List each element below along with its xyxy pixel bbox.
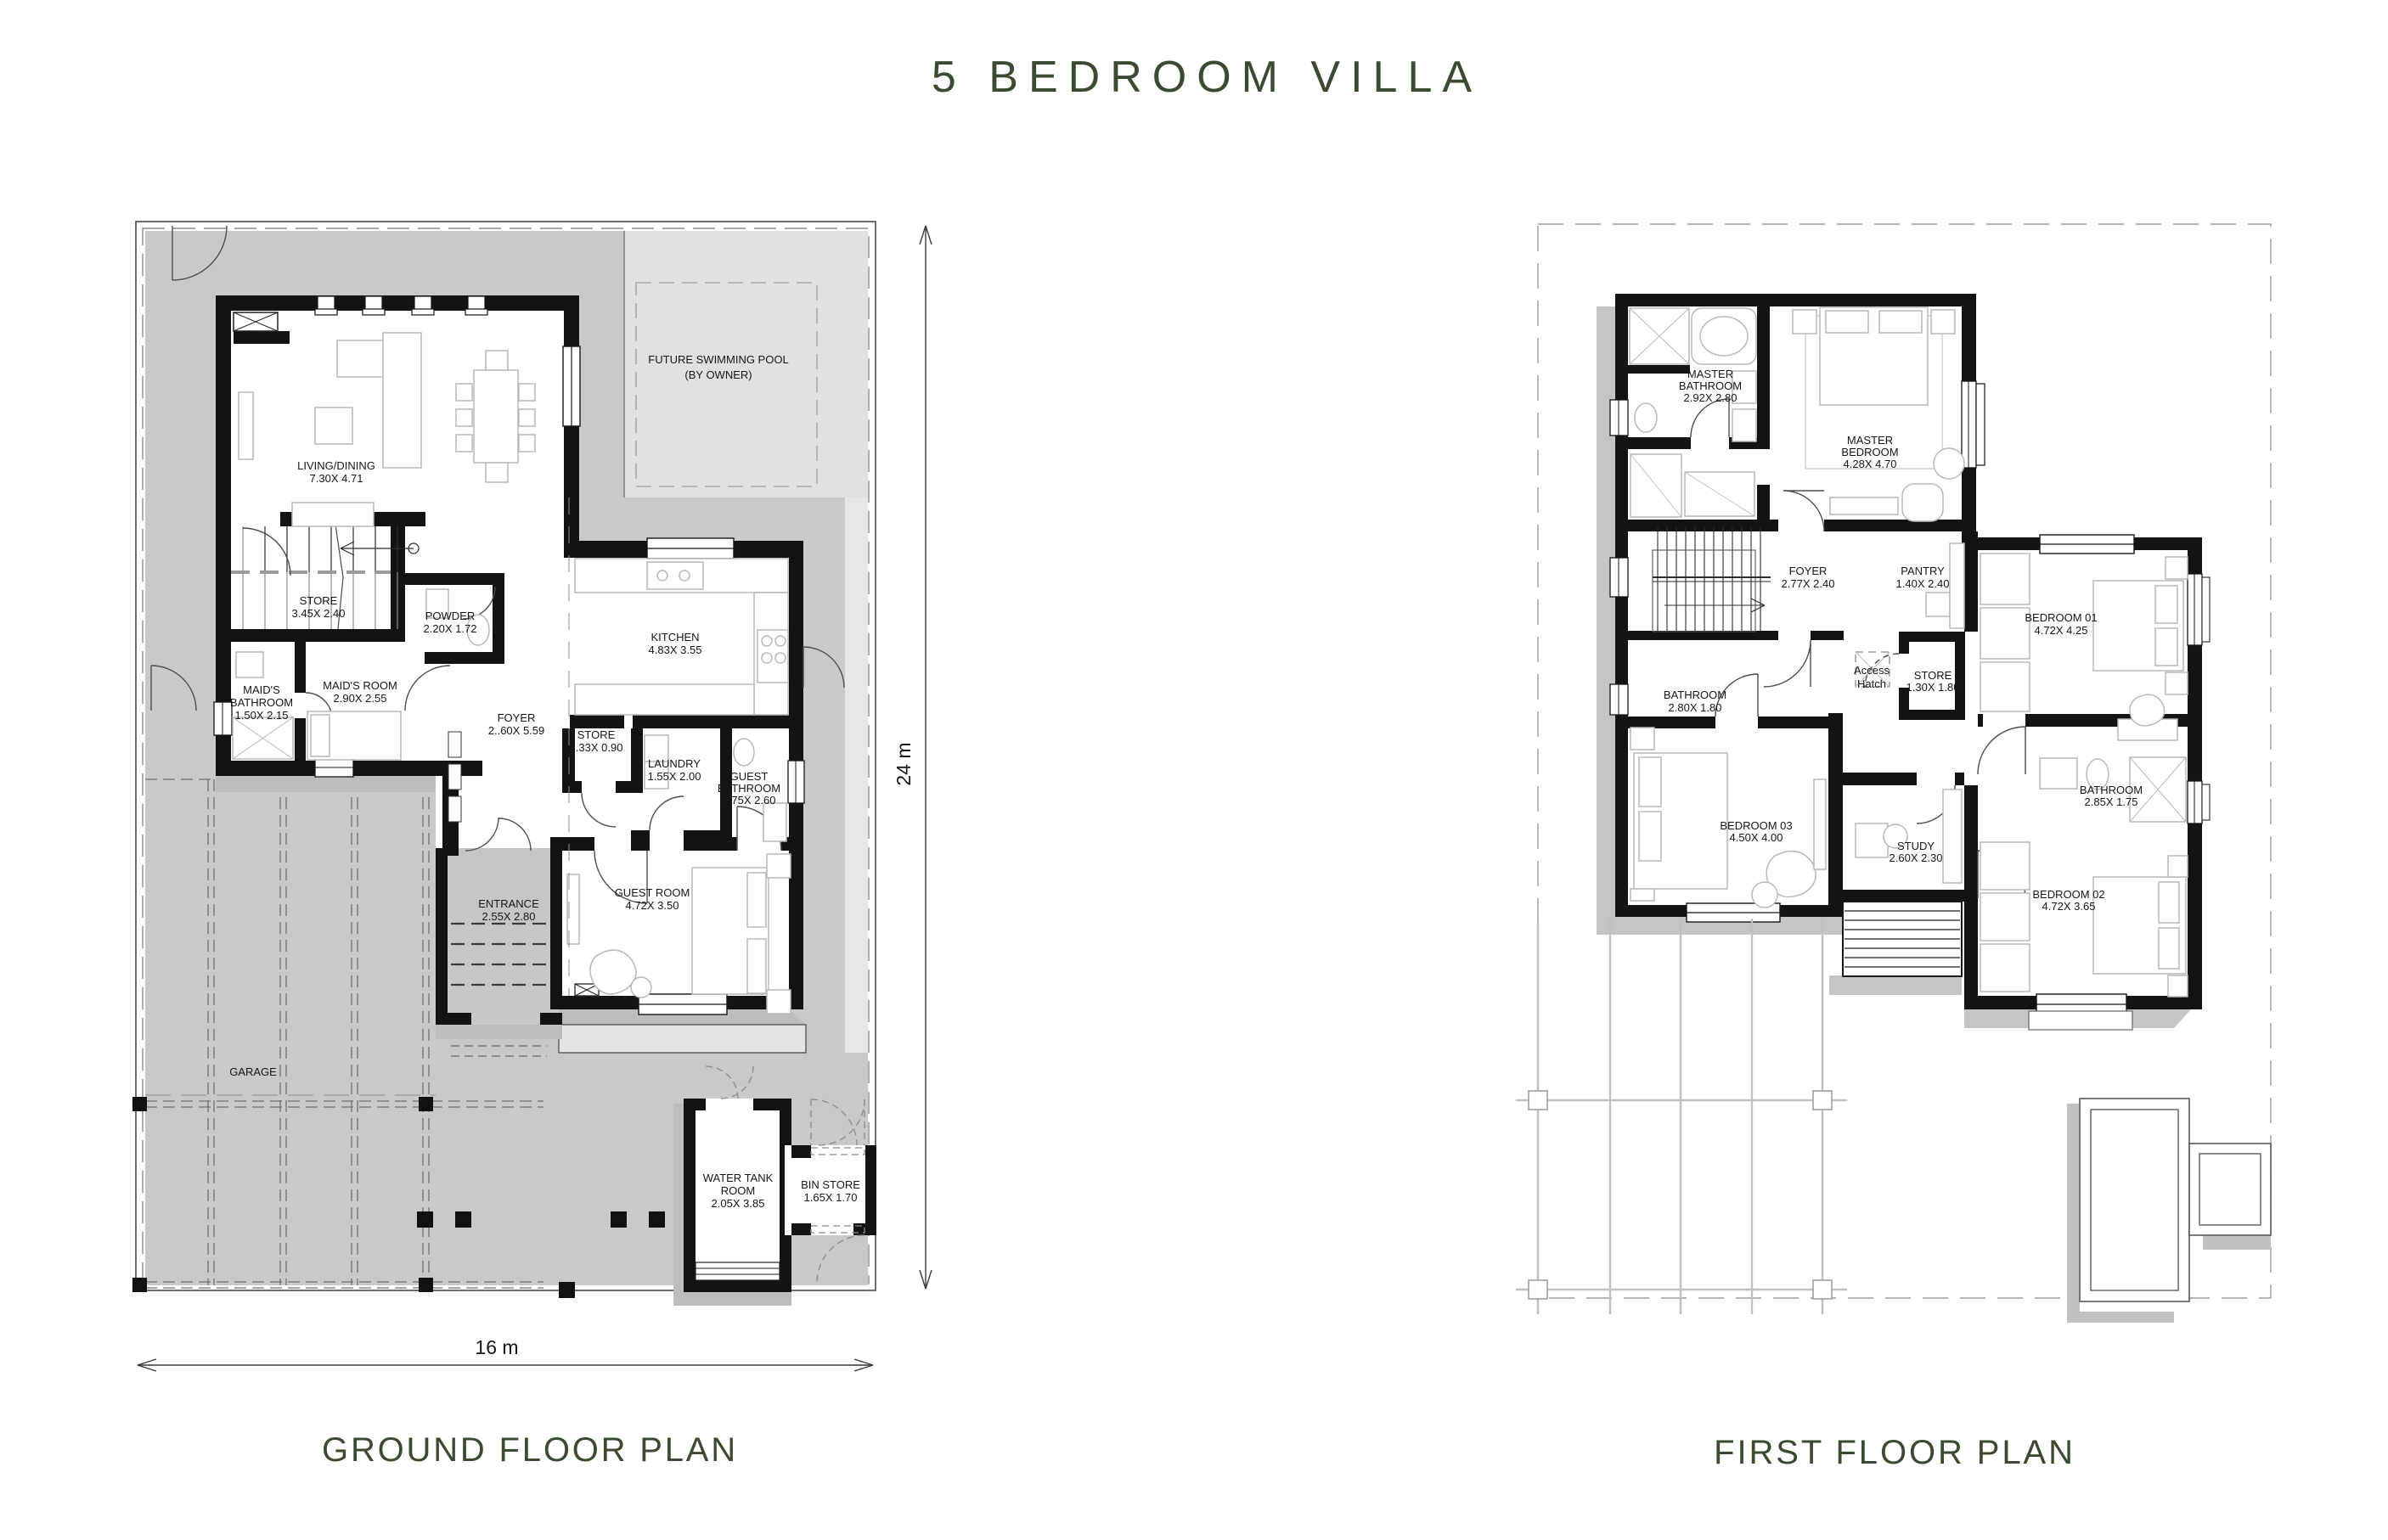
svg-text:2.55X 2.80: 2.55X 2.80 bbox=[482, 910, 536, 923]
svg-text:LIVING/DINING: LIVING/DINING bbox=[297, 459, 375, 472]
svg-text:1.40X 2.40: 1.40X 2.40 bbox=[1896, 577, 1950, 590]
svg-text:ENTRANCE: ENTRANCE bbox=[478, 897, 539, 910]
svg-text:BATHROOM: BATHROOM bbox=[230, 696, 293, 709]
svg-text:STORE: STORE bbox=[1914, 669, 1952, 682]
svg-text:BEDROOM 02: BEDROOM 02 bbox=[2032, 888, 2104, 901]
svg-text:2.20X 1.72: 2.20X 1.72 bbox=[424, 622, 477, 635]
svg-text:Access: Access bbox=[1854, 664, 1890, 677]
svg-text:2.85X 1.75: 2.85X 1.75 bbox=[2085, 795, 2138, 808]
svg-text:FUTURE SWIMMING POOL: FUTURE SWIMMING POOL bbox=[648, 353, 788, 366]
svg-text:16 m: 16 m bbox=[475, 1336, 518, 1358]
svg-text:STUDY: STUDY bbox=[1897, 840, 1935, 852]
svg-text:2.05X 3.85: 2.05X 3.85 bbox=[712, 1197, 765, 1210]
svg-text:MASTER: MASTER bbox=[1687, 368, 1733, 380]
svg-text:1.50X 2.15: 1.50X 2.15 bbox=[235, 709, 289, 722]
svg-text:5 BEDROOM VILLA: 5 BEDROOM VILLA bbox=[932, 53, 1482, 102]
svg-text:LAUNDRY: LAUNDRY bbox=[648, 757, 701, 770]
svg-text:KITCHEN: KITCHEN bbox=[651, 631, 699, 644]
svg-text:1.65X 1.70: 1.65X 1.70 bbox=[804, 1191, 858, 1204]
svg-text:ROOM: ROOM bbox=[721, 1184, 755, 1197]
svg-text:2.80X 1.80: 2.80X 1.80 bbox=[1669, 701, 1722, 714]
svg-text:GROUND FLOOR PLAN: GROUND FLOOR PLAN bbox=[322, 1431, 738, 1469]
svg-text:MASTER: MASTER bbox=[1847, 434, 1893, 447]
svg-text:BATHROOM: BATHROOM bbox=[2080, 784, 2143, 796]
svg-text:BEDROOM 03: BEDROOM 03 bbox=[1720, 819, 1792, 832]
svg-text:1.55X 2.00: 1.55X 2.00 bbox=[648, 770, 701, 783]
svg-text:2..60X 5.59: 2..60X 5.59 bbox=[488, 724, 545, 737]
svg-text:GARAGE: GARAGE bbox=[229, 1065, 277, 1078]
svg-text:1.30X 1.80: 1.30X 1.80 bbox=[1906, 681, 1960, 694]
svg-text:BEDROOM: BEDROOM bbox=[1841, 446, 1898, 458]
svg-text:1.33X 0.90: 1.33X 0.90 bbox=[570, 741, 623, 754]
svg-text:4.50X 4.00: 4.50X 4.00 bbox=[1730, 831, 1783, 844]
svg-text:2.92X 2.80: 2.92X 2.80 bbox=[1684, 391, 1737, 404]
svg-text:PANTRY: PANTRY bbox=[1901, 565, 1945, 577]
svg-text:4.28X 4.70: 4.28X 4.70 bbox=[1844, 458, 1897, 470]
svg-text:4.72X 4.25: 4.72X 4.25 bbox=[2035, 624, 2088, 637]
svg-text:POWDER: POWDER bbox=[425, 610, 476, 622]
svg-text:WATER TANK: WATER TANK bbox=[703, 1172, 774, 1184]
svg-text:BATHROOM: BATHROOM bbox=[718, 782, 780, 795]
svg-text:FIRST FLOOR PLAN: FIRST FLOOR PLAN bbox=[1714, 1434, 2075, 1471]
svg-text:1.75X 2.60: 1.75X 2.60 bbox=[723, 794, 776, 807]
svg-text:(BY OWNER): (BY OWNER) bbox=[684, 368, 752, 381]
svg-text:BATHROOM: BATHROOM bbox=[1664, 689, 1726, 701]
svg-text:MAID'S ROOM: MAID'S ROOM bbox=[323, 679, 397, 692]
svg-text:4.72X 3.65: 4.72X 3.65 bbox=[2042, 900, 2096, 913]
svg-text:GUEST: GUEST bbox=[730, 770, 769, 783]
svg-text:Hatch: Hatch bbox=[1857, 677, 1886, 690]
svg-text:MAID'S: MAID'S bbox=[243, 683, 280, 696]
svg-text:FOYER: FOYER bbox=[498, 711, 536, 724]
svg-text:BATHROOM: BATHROOM bbox=[1679, 379, 1742, 392]
svg-text:2.77X 2.40: 2.77X 2.40 bbox=[1782, 577, 1835, 590]
svg-text:3.45X 2.40: 3.45X 2.40 bbox=[292, 607, 346, 620]
svg-text:STORE: STORE bbox=[577, 728, 616, 741]
svg-text:24 m: 24 m bbox=[893, 742, 915, 785]
svg-text:7.30X 4.71: 7.30X 4.71 bbox=[310, 472, 363, 485]
svg-text:4.83X 3.55: 4.83X 3.55 bbox=[649, 644, 702, 656]
svg-text:BIN STORE: BIN STORE bbox=[801, 1178, 860, 1191]
svg-text:FOYER: FOYER bbox=[1789, 565, 1828, 577]
svg-text:GUEST ROOM: GUEST ROOM bbox=[615, 886, 690, 899]
svg-text:BEDROOM 01: BEDROOM 01 bbox=[2025, 611, 2097, 624]
svg-text:2.60X 2.30: 2.60X 2.30 bbox=[1890, 851, 1943, 864]
svg-text:2.90X 2.55: 2.90X 2.55 bbox=[334, 692, 387, 705]
svg-text:STORE: STORE bbox=[300, 594, 338, 607]
svg-text:4.72X 3.50: 4.72X 3.50 bbox=[626, 899, 679, 912]
